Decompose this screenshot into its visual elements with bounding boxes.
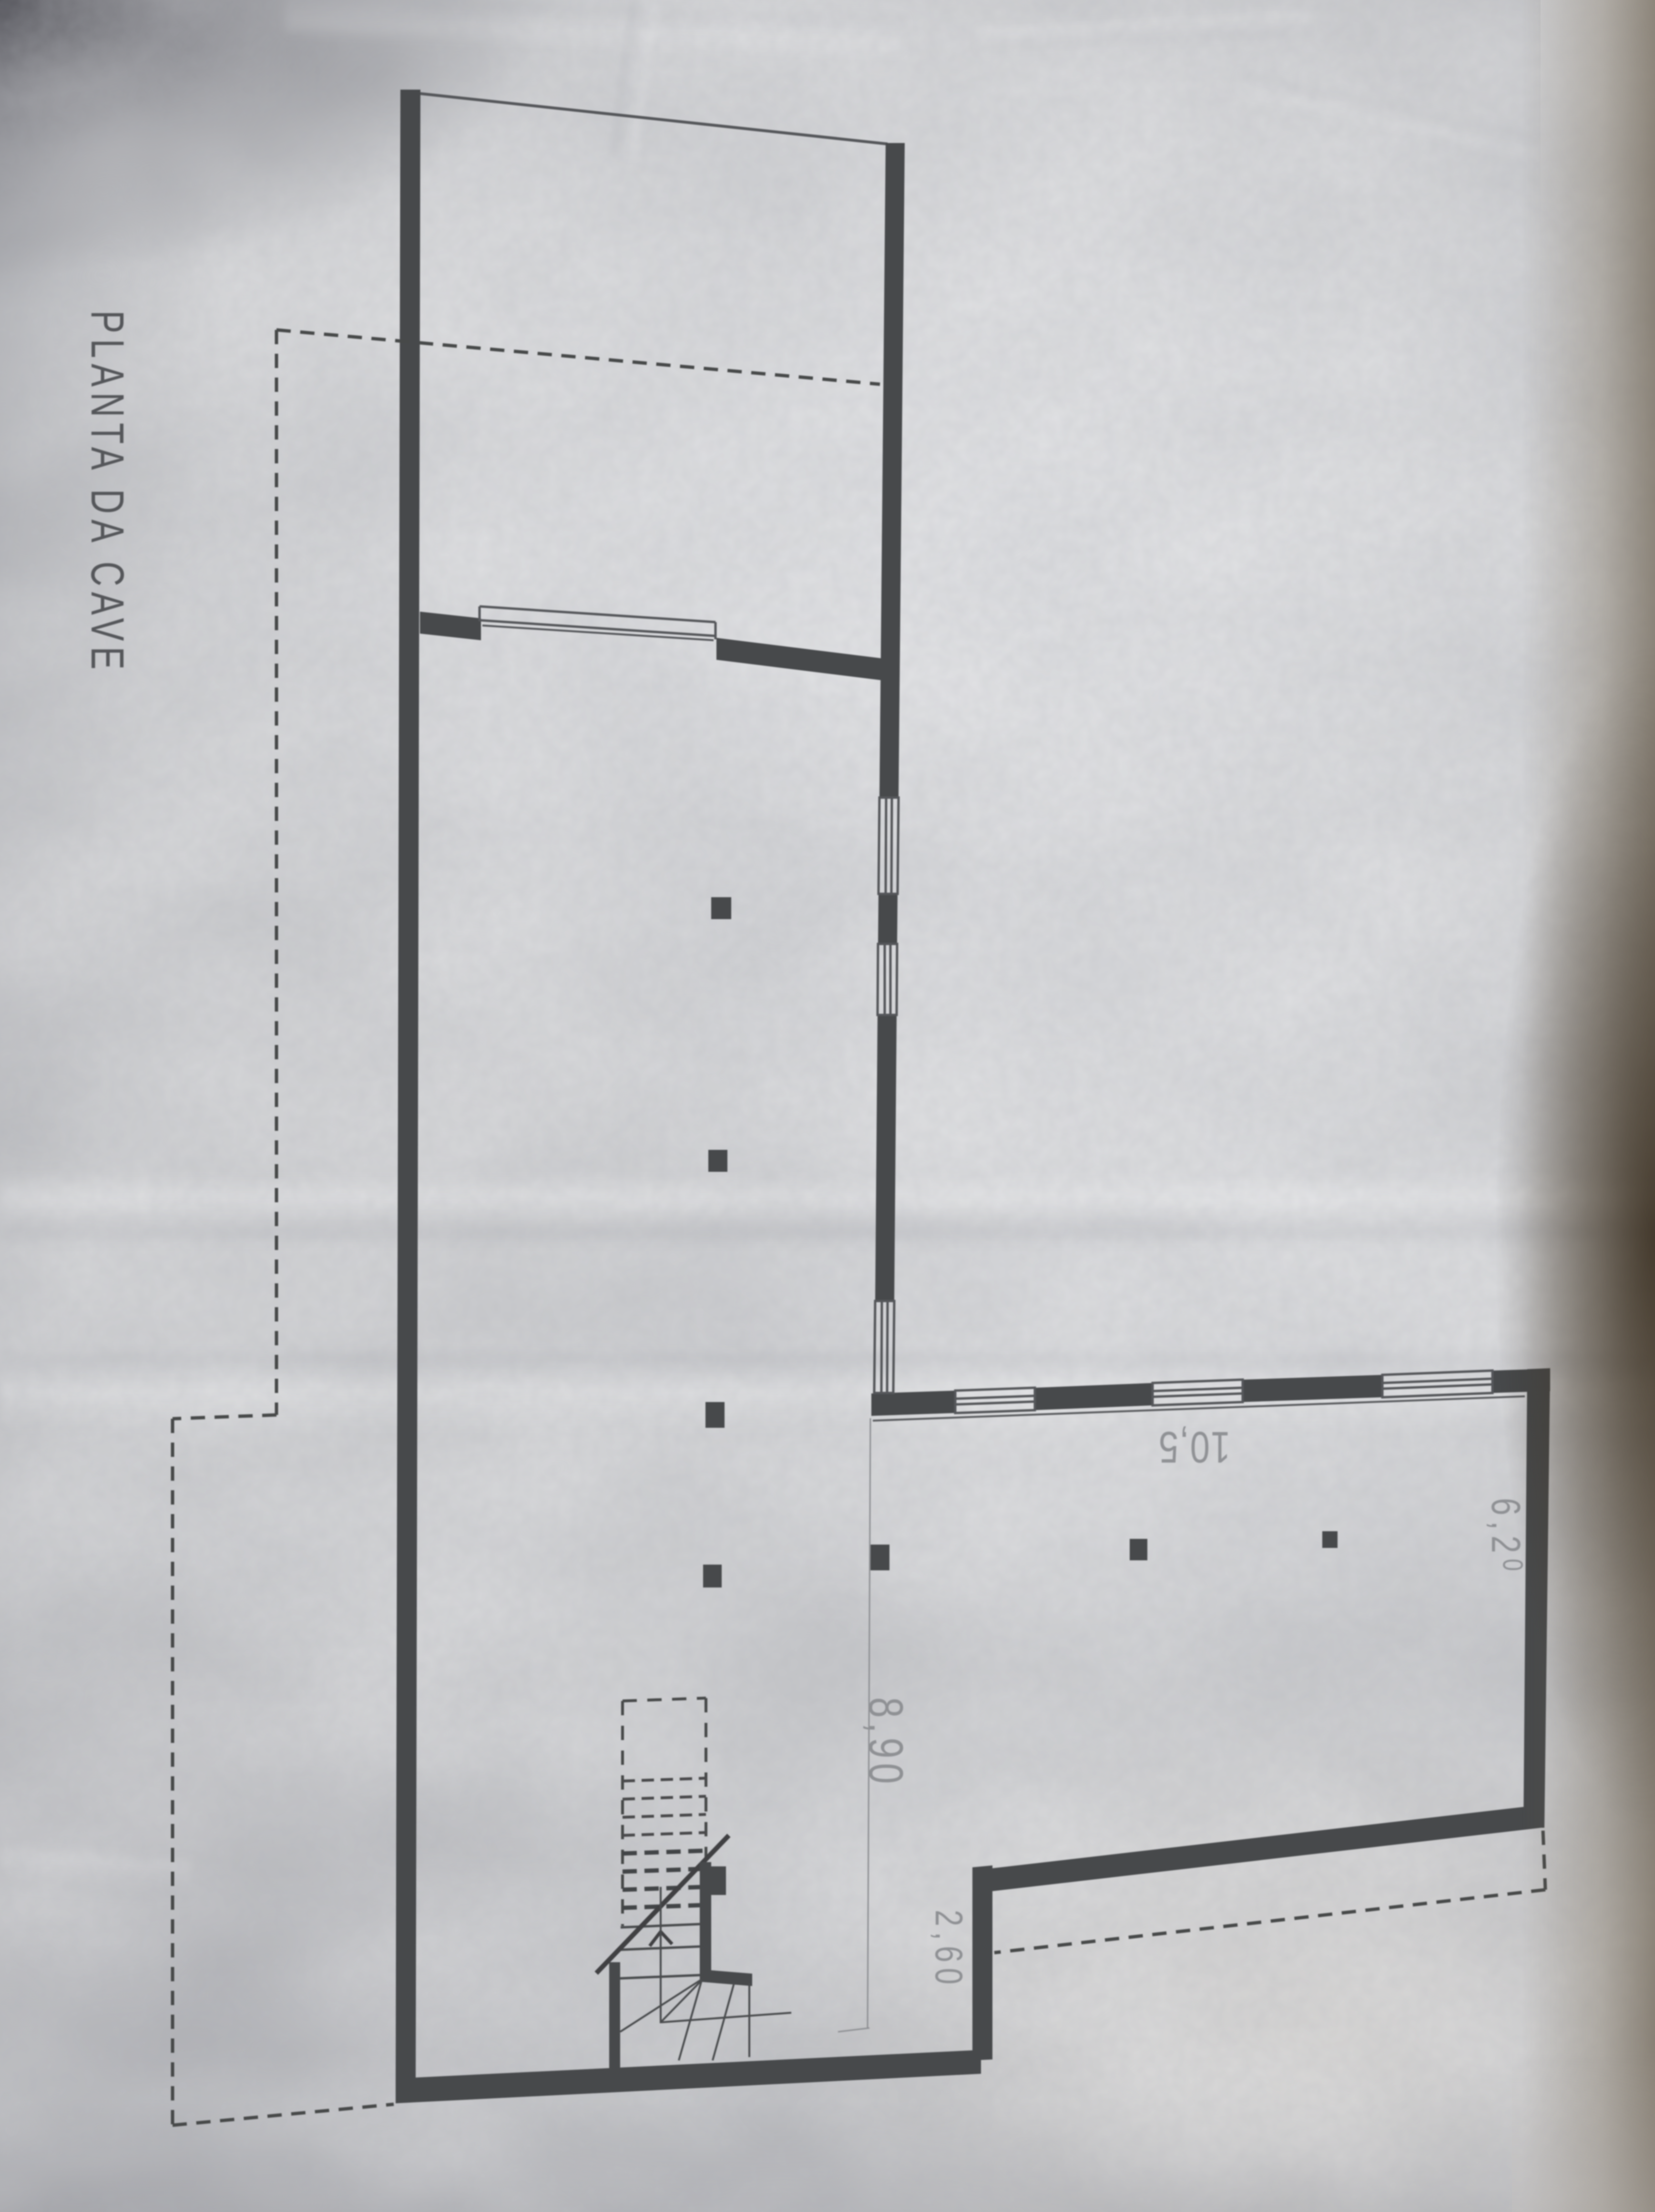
svg-text:8,90: 8,90 (859, 1697, 913, 1789)
svg-text:10,5: 10,5 (1158, 1423, 1230, 1472)
svg-text:2,60: 2,60 (927, 1910, 970, 1990)
svg-text:PLANTA DA CAVE: PLANTA DA CAVE (81, 310, 133, 675)
